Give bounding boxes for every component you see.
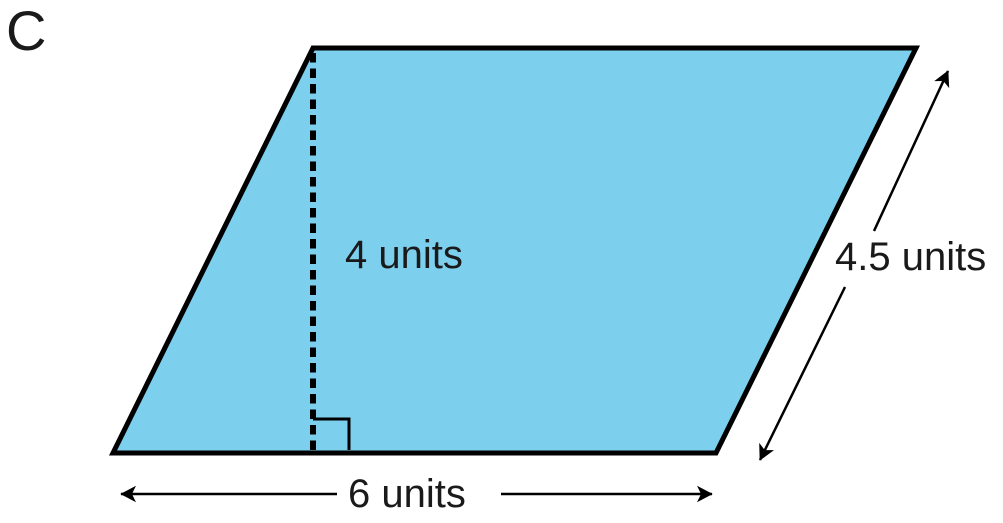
parallelogram-shape: [113, 48, 916, 453]
height-label: 4 units: [345, 233, 463, 277]
slant-side-label: 4.5 units: [835, 235, 986, 279]
figure-canvas: C 4 units 6 units 4.5 units: [0, 0, 1003, 523]
figure-label: C: [6, 0, 46, 62]
base-label: 6 units: [348, 472, 466, 516]
parallelogram-figure: C 4 units 6 units 4.5 units: [0, 0, 1003, 523]
